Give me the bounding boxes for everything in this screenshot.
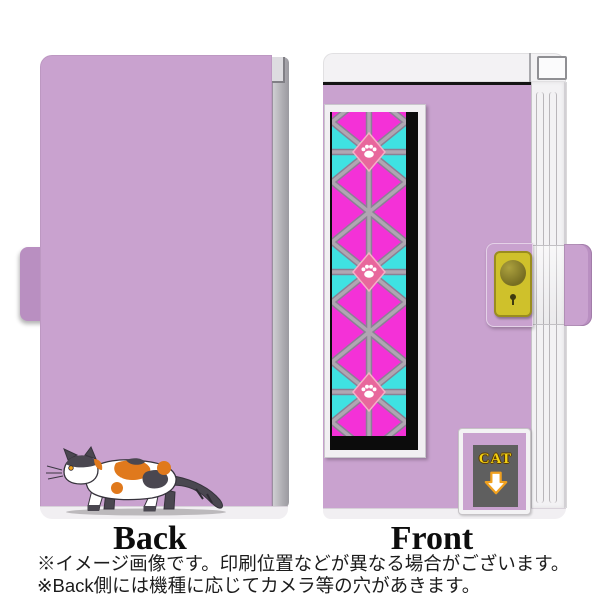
cat-badge-frame: CAT bbox=[458, 428, 531, 515]
back-edge-notch bbox=[272, 57, 285, 83]
clasp-button bbox=[494, 251, 532, 317]
asanoha-paw-pattern bbox=[332, 112, 406, 436]
keyhole-icon bbox=[510, 294, 516, 300]
cat-tail bbox=[170, 476, 223, 508]
cat-badge-text: CAT bbox=[479, 451, 513, 468]
strap-wrap-end bbox=[564, 244, 592, 326]
footnote-line-1: ※イメージ画像です。印刷位置などが異なる場合がございます。 bbox=[37, 553, 597, 575]
back-side-edge bbox=[272, 57, 289, 508]
snap-button-icon bbox=[500, 260, 526, 286]
calico-cat-illustration bbox=[44, 446, 236, 516]
cat-badge: CAT bbox=[473, 445, 518, 507]
product-photo: CAT Back Front ※イメージ画像です。印刷位置などが異なる場合がござ… bbox=[0, 0, 600, 600]
down-arrow-icon bbox=[483, 470, 509, 496]
cat-whiskers bbox=[46, 466, 63, 479]
camera-window bbox=[537, 56, 567, 80]
footnote-line-2: ※Back側には機種に応じてカメラ等の穴があきます。 bbox=[37, 575, 597, 597]
cat-eye bbox=[69, 466, 74, 471]
decor-panel-frame bbox=[324, 104, 426, 458]
top-edge-divider bbox=[529, 53, 531, 82]
strap-over-spine bbox=[531, 245, 566, 325]
